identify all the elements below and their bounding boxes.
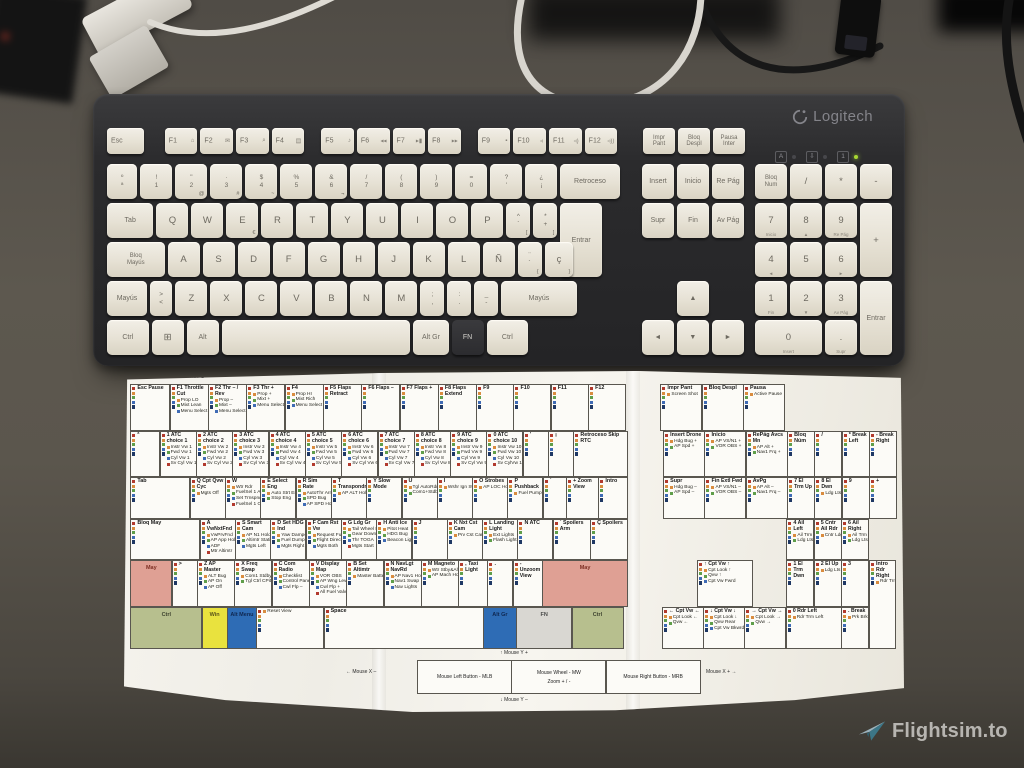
chart-cell: * Break Left bbox=[842, 431, 870, 477]
keyboard-key: Av Pág bbox=[712, 203, 744, 238]
modifier-strip bbox=[706, 434, 709, 456]
chart-key-label: Bloq May bbox=[137, 521, 198, 527]
spacer bbox=[628, 560, 662, 607]
key-label: F8 bbox=[432, 138, 440, 145]
chart-cell: 0 Rdr LeftRdr Trm Left bbox=[786, 607, 842, 649]
key-altgr-label: # bbox=[236, 191, 239, 197]
keyboard-key: ► bbox=[712, 320, 744, 355]
modifier-strip bbox=[439, 480, 442, 502]
keyboard-key: ? ' bbox=[490, 164, 522, 199]
modifier-strip bbox=[202, 522, 205, 544]
chart-cell: May bbox=[130, 560, 172, 607]
chart-cell: . bbox=[487, 560, 513, 607]
chart-binding: Fuel Pump bbox=[514, 491, 541, 497]
chart-cell: Bloq May bbox=[130, 519, 200, 560]
modifier-strip bbox=[664, 610, 667, 632]
chart-key-label: Space bbox=[331, 609, 482, 615]
key-label: B bbox=[328, 293, 334, 304]
chart-binding: Rdr Trm Right bbox=[876, 579, 894, 585]
mouse-buttons-box: Mouse Left Button - MLBMouse Wheel - MWZ… bbox=[418, 660, 701, 694]
key-label: F bbox=[286, 254, 292, 265]
modifier-strip bbox=[871, 563, 874, 585]
keyboard-key: Re Pág bbox=[712, 164, 744, 199]
key-label: . bbox=[840, 332, 843, 343]
key-label: F10 bbox=[517, 138, 529, 145]
key-sublabel: Inicio bbox=[755, 232, 787, 237]
modifier-strip bbox=[592, 522, 595, 544]
chart-cell: + Zoom View bbox=[566, 477, 599, 519]
modifier-strip bbox=[132, 434, 135, 456]
power-led bbox=[2, 34, 8, 40]
chart-cell: 0 ATC choice 10Instr Vw 10Fwd Vw 10Cyl V… bbox=[486, 431, 523, 477]
key-label: 6 bbox=[838, 254, 843, 265]
chart-binding: Sv CylVw 10 bbox=[493, 461, 521, 467]
modifier-strip bbox=[440, 387, 443, 409]
chart-cell: 4 Ail LeftAil Trm LftLdg Lts ← bbox=[786, 519, 814, 560]
modifier-strip bbox=[816, 480, 819, 502]
keyboard-key: L bbox=[448, 242, 480, 277]
chart-key-label: ¡ bbox=[555, 433, 572, 439]
chart-binding: Cpt Vw Bkwrd bbox=[710, 626, 743, 632]
chart-binding: Prk Brk bbox=[848, 615, 867, 621]
chart-cell: F7 Flaps + bbox=[400, 384, 439, 431]
chart-cell: 1 El Trm Dwn bbox=[786, 560, 814, 607]
chart-binding: Mgts Left bbox=[242, 544, 269, 550]
keyboard-key: 3Av Pág bbox=[825, 281, 857, 316]
modifier-strip bbox=[343, 434, 346, 456]
chart-key-label: Tab bbox=[137, 479, 188, 485]
keyboard-key: ) 9 bbox=[420, 164, 452, 199]
modifier-strip bbox=[515, 387, 518, 409]
key-altgr-label: } bbox=[569, 269, 571, 275]
chart-binding: Mgts Start bbox=[348, 544, 375, 550]
key-label: Retroceso bbox=[574, 178, 606, 185]
led-on bbox=[854, 155, 858, 159]
chart-cell: F3 Thr +Prop +Mixt +Menu Select 3 bbox=[246, 384, 285, 431]
chart-binding: Cntr Ldg Lts bbox=[821, 533, 840, 539]
keyboard-key: F8▸▸ bbox=[428, 128, 461, 154]
modifier-strip bbox=[871, 434, 874, 456]
chart-cell: Win bbox=[202, 607, 228, 649]
chart-key-label: Bloq Núm bbox=[794, 433, 813, 445]
modifier-strip bbox=[262, 480, 265, 502]
key-label: ^ ` bbox=[517, 213, 520, 228]
keyboard-key: 0Insert bbox=[755, 320, 822, 355]
led-off bbox=[792, 155, 796, 159]
chart-binding: Sv Cyl Vw 3 bbox=[239, 461, 267, 467]
keyboard-key: FN bbox=[452, 320, 484, 355]
chart-binding: Flash Light bbox=[489, 538, 516, 544]
modifier-strip bbox=[553, 387, 556, 409]
modifier-strip bbox=[843, 522, 846, 544]
keyboard-key: F10◃ bbox=[513, 128, 546, 154]
modifier-strip bbox=[788, 522, 791, 544]
keyboard-key: 2▼ bbox=[790, 281, 822, 316]
chart-binding: Beacon Light bbox=[383, 538, 410, 544]
keyboard-row: º ª! 1" 2@· 3#$ 4~% 5& 6¬/ 7( 8) 9= 0? '… bbox=[107, 164, 895, 199]
key-label: F4 bbox=[276, 138, 284, 145]
modifier-strip bbox=[308, 522, 311, 544]
key-label: U bbox=[379, 215, 386, 226]
modifier-strip bbox=[227, 480, 230, 502]
chart-key-label: 6 Ail Right bbox=[848, 521, 867, 533]
chart-binding: Ldg Lts → bbox=[848, 538, 867, 544]
chart-cell: 5 Cntr Ail RdrCntr Ldg Lts bbox=[814, 519, 842, 560]
key-function-icon: ◃ bbox=[540, 138, 543, 145]
key-label: A bbox=[180, 254, 186, 265]
modifier-strip bbox=[705, 610, 708, 632]
chart-cell: SuprHdg Bug –AP Spd – bbox=[663, 477, 705, 519]
modifier-strip bbox=[132, 387, 135, 409]
keyboard-key: Pausa Inter bbox=[713, 128, 745, 154]
key-label: Insert bbox=[649, 178, 667, 185]
keyboard-key: Ctrl bbox=[487, 320, 529, 355]
chart-key-label: R Sim Rate bbox=[303, 479, 330, 491]
chart-cell: Q Cpt Qvw CycMgts Off bbox=[190, 477, 226, 519]
chart-binding: Sv Cyl Vw 8 bbox=[421, 461, 449, 467]
key-label: F3 bbox=[240, 138, 248, 145]
chart-cell: ' bbox=[523, 431, 549, 477]
key-label: C bbox=[258, 293, 265, 304]
modifier-strip bbox=[706, 480, 709, 502]
key-label: F6 bbox=[361, 138, 369, 145]
key-label: S bbox=[215, 254, 221, 265]
key-function-icon: ◃)) bbox=[607, 138, 614, 145]
modifier-strip bbox=[271, 434, 274, 456]
keyboard-key: / 7 bbox=[350, 164, 382, 199]
keyboard-key: F5♪ bbox=[321, 128, 354, 154]
chart-key-label: > bbox=[179, 562, 196, 568]
key-label: Mayús bbox=[117, 295, 138, 302]
chart-cell: 3 bbox=[841, 560, 869, 607]
chart-key-label: J bbox=[419, 521, 446, 527]
modifier-strip bbox=[478, 387, 481, 409]
chart-key-label: 7 El Trm Up bbox=[794, 479, 813, 491]
key-sublabel: ► bbox=[825, 271, 857, 276]
modifier-strip bbox=[745, 387, 748, 409]
chart-key-label: 3 bbox=[848, 562, 867, 568]
key-label: ? ' bbox=[505, 174, 509, 189]
keyboard-key: Z bbox=[175, 281, 207, 316]
keyboard-key: & 6¬ bbox=[315, 164, 347, 199]
modifier-strip bbox=[132, 522, 135, 544]
modifier-strip bbox=[274, 563, 277, 585]
chart-key-label: ' bbox=[530, 433, 547, 439]
key-sublabel: Insert bbox=[755, 349, 822, 354]
keyboard-row: EscF1⌂F2✉F3⌕F4▤F5♪F6◂◂F7▸▮F8▸▸F9▪F10◃F11… bbox=[107, 128, 895, 154]
chart-key-label: 0 ATC choice 10 bbox=[493, 433, 521, 445]
modifier-strip bbox=[789, 434, 792, 456]
chart-key-label: L Landing Light bbox=[489, 521, 516, 533]
chart-cell: ¡ bbox=[548, 431, 574, 477]
chart-binding: Tgl Ctrl CPit bbox=[241, 579, 270, 585]
spacer bbox=[626, 384, 661, 431]
chart-cell: ↑ Cpt Vw ↑Cpt Look ↑Qvw ↑Cpt Vw Fwrd bbox=[697, 560, 753, 607]
keyboard-key: 5 bbox=[790, 242, 822, 277]
keyboard-key: F3⌕ bbox=[236, 128, 269, 154]
keyboard-key: F6◂◂ bbox=[357, 128, 390, 154]
chart-cell: → Cpt Vw →Cpt Look →Qvw → bbox=[744, 607, 786, 649]
keyboard-key: V bbox=[280, 281, 312, 316]
chart-cell: H Anti IcePitot HeatHDG BugBeacon Light bbox=[376, 519, 412, 560]
chart-key-label: Y Slow Mode bbox=[373, 479, 400, 491]
chart-cell: Retroceso Skip RTC bbox=[573, 431, 628, 477]
chart-cell: Bloq Núm bbox=[787, 431, 815, 477]
chart-binding: Mgts Off bbox=[197, 491, 224, 497]
modifier-strip bbox=[488, 434, 491, 456]
chart-binding: Menu Select 4 bbox=[292, 403, 322, 409]
chart-key-label: 2 ATC choice 2 bbox=[203, 433, 231, 445]
chart-binding: Menu Select 2 bbox=[215, 409, 245, 415]
chart-cell: K Nxt Cst CamPrv Cst Cam bbox=[447, 519, 483, 560]
chart-binding: AP Off bbox=[204, 585, 233, 591]
keyboard-key: Bloq Num bbox=[755, 164, 787, 199]
keyboard-key: * bbox=[825, 164, 857, 199]
chart-binding: Sv Cyl Vw 5 bbox=[312, 461, 340, 467]
key-label: 9 bbox=[838, 215, 843, 226]
chart-binding: AP SPD Hold bbox=[303, 502, 330, 508]
modifier-strip bbox=[343, 522, 346, 544]
chart-cell: Fin Extl FwdAP VS/N1 –VOR OBS – bbox=[704, 477, 746, 519]
chart-binding: Rdr Trm Left bbox=[793, 615, 840, 621]
modifier-strip bbox=[515, 563, 518, 585]
spacer bbox=[628, 519, 661, 560]
key-label: = 0 bbox=[469, 174, 473, 189]
keyboard-key: F1⌂ bbox=[165, 128, 198, 154]
key-label: ¨ ´ bbox=[529, 252, 531, 267]
key-label: > < bbox=[159, 291, 163, 306]
chart-binding: AP Spd – bbox=[670, 490, 703, 496]
chart-cell: B Set AltimtrMaster Battery bbox=[346, 560, 384, 607]
key-label: X bbox=[223, 293, 229, 304]
modifier-strip bbox=[404, 480, 407, 502]
modifier-strip bbox=[414, 522, 417, 544]
chart-binding: Qvw → bbox=[751, 620, 784, 626]
keyboard-key: Alt Gr bbox=[413, 320, 448, 355]
keyboard-key: Bloq Mayús bbox=[107, 242, 165, 277]
chart-key-label: Retroceso Skip RTC bbox=[580, 433, 626, 445]
key-label: Fin bbox=[688, 217, 698, 224]
keyboard-key: 4◄ bbox=[755, 242, 787, 277]
chart-binding: Nav1 Frq – bbox=[753, 490, 786, 496]
chart-key-label: T Transpondr bbox=[338, 479, 365, 491]
chart-binding: AP Mach Hold bbox=[428, 573, 457, 579]
chart-key-label: Ctrl bbox=[573, 612, 623, 618]
keyboard-key: N bbox=[350, 281, 382, 316]
chart-cell: InicioAP VS/N1 +VOR OBS + bbox=[704, 431, 746, 477]
keyboard-key: Q bbox=[156, 203, 188, 238]
chart-cell: 7 ATC choice 7Instr Vw 7Fwd Vw 7Cyl Vw 7… bbox=[378, 431, 415, 477]
mouse-x-plus-label: Mouse X + → bbox=[706, 669, 736, 675]
key-sublabel: Supr bbox=[825, 349, 857, 354]
key-function-icon: ▸▸ bbox=[452, 138, 458, 145]
chart-key-label: 5 ATC choice 5 bbox=[312, 433, 340, 445]
key-altgr-label: [ bbox=[526, 230, 528, 236]
keyboard-key: Fin bbox=[677, 203, 709, 238]
key-label: Mayús bbox=[529, 295, 550, 302]
key-label: Ctrl bbox=[502, 334, 513, 341]
modifier-strip bbox=[452, 434, 455, 456]
modifier-strip bbox=[525, 434, 528, 456]
keyboard-key: $ 4~ bbox=[245, 164, 277, 199]
chart-cell: L Landing LightExt LightsFlash Light bbox=[482, 519, 518, 560]
desk-surface: Logitech A⇩1 EscF1⌂F2✉F3⌕F4▤F5♪F6◂◂F7▸▮F… bbox=[0, 0, 1024, 768]
chart-binding: Ldg Lts ← bbox=[793, 538, 812, 544]
chart-binding: Prv Cst Cam bbox=[454, 533, 481, 539]
keyboard-key: ▲ bbox=[677, 281, 709, 316]
chart-key-label: ª bbox=[137, 433, 158, 439]
chart-cell: X Freq SwapCom1 StdbyTgl Ctrl CPit bbox=[234, 560, 272, 607]
laptop-edge bbox=[0, 0, 87, 104]
chart-key-label: Alt Gr bbox=[484, 612, 516, 618]
key-label: Y bbox=[344, 215, 350, 226]
mouse-box-label: Mouse Left Button - MLB bbox=[437, 674, 492, 680]
key-label: ç bbox=[557, 254, 562, 265]
chart-cell: F6 Flaps – bbox=[361, 384, 400, 431]
keyboard-key: : . bbox=[447, 281, 471, 316]
modifier-strip bbox=[871, 480, 874, 502]
chart-cell: ` bbox=[543, 477, 567, 519]
keyboard-key: ^ `[ bbox=[506, 203, 530, 238]
keyboard-key: F7▸▮ bbox=[393, 128, 426, 154]
modifier-strip bbox=[325, 387, 328, 409]
key-label: J bbox=[391, 254, 396, 265]
modifier-strip bbox=[590, 387, 593, 409]
chart-key-label: Z AP Master bbox=[204, 562, 233, 574]
keyboard-key: R bbox=[261, 203, 293, 238]
chart-key-label: RePág Avcs Mn bbox=[753, 433, 786, 445]
chart-key-label: 8 ATC choice 8 bbox=[421, 433, 449, 445]
key-label: Bloq Mayús bbox=[127, 253, 145, 266]
chart-key-label: + bbox=[876, 479, 895, 485]
key-label: Impr Pant bbox=[653, 135, 665, 148]
key-altgr-label: € bbox=[252, 230, 255, 236]
chart-binding: Active Pause bbox=[750, 392, 783, 398]
key-label: / 7 bbox=[365, 174, 369, 189]
chart-cell: F11 bbox=[551, 384, 589, 431]
key-sublabel: Av Pág bbox=[825, 310, 857, 315]
spacer bbox=[628, 477, 663, 519]
modifier-strip bbox=[248, 387, 251, 409]
paper-plane-icon bbox=[858, 719, 886, 743]
chart-binding: Wshr Ign Switch bbox=[444, 485, 471, 491]
keyboard-key: A bbox=[168, 242, 200, 277]
chart-cell: ª bbox=[130, 431, 160, 477]
key-label: Ctrl bbox=[122, 334, 133, 341]
chart-cell: 9 ATC choice 9Instr Vw 9Fwd Vw 9Cyl Vw 9… bbox=[450, 431, 487, 477]
chart-key-label: - Break Right bbox=[876, 433, 895, 445]
keyboard-key: W bbox=[191, 203, 223, 238]
modifier-strip bbox=[416, 434, 419, 456]
keyboard-key: O bbox=[436, 203, 468, 238]
key-label: F11 bbox=[553, 138, 565, 145]
chart-row: Bloq MayA VwNxtFndVwPrvFndAP App HoldADF… bbox=[131, 519, 897, 560]
chart-binding: Mtr Altimtr bbox=[207, 549, 234, 555]
key-sublabel: Re Pág bbox=[825, 232, 857, 237]
keyboard-key: ¨ ´{ bbox=[518, 242, 542, 277]
keyboard-key: _ - bbox=[474, 281, 498, 316]
chart-key-label: * Break Left bbox=[849, 433, 868, 445]
key-label: Bloq Despl bbox=[686, 135, 701, 148]
modifier-strip bbox=[380, 434, 383, 456]
modifier-strip bbox=[162, 434, 165, 456]
key-label: ( 8 bbox=[400, 174, 404, 189]
keyboard-key: F12◃)) bbox=[585, 128, 618, 154]
chart-key-label: K Nxt Cst Cam bbox=[454, 521, 481, 533]
chart-key-label: F5 Flaps Retract bbox=[330, 386, 360, 398]
chart-key-label: F6 Flaps – bbox=[368, 386, 398, 392]
chart-binding: Mgts Both bbox=[313, 544, 340, 550]
keyboard-key: ! 1 bbox=[140, 164, 172, 199]
keyboard-key: Ñ bbox=[483, 242, 515, 277]
key-label: 3 bbox=[838, 293, 843, 304]
key-label: Supr bbox=[651, 217, 666, 224]
key-label: ; , bbox=[431, 291, 433, 306]
key-label: O bbox=[449, 215, 456, 226]
keyboard-key: F9▪ bbox=[478, 128, 511, 154]
key-label: W bbox=[203, 215, 212, 226]
keyboard-key: 1Fin bbox=[755, 281, 787, 316]
key-label: Inicio bbox=[685, 178, 701, 185]
keyboard-key: P bbox=[471, 203, 503, 238]
keyboard-key: - bbox=[860, 164, 892, 199]
modifier-strip bbox=[662, 387, 665, 409]
keyboard-row: Bloq MayúsASDFGHJKLÑ¨ ´{ç}4◄56► bbox=[107, 242, 895, 277]
chart-key-label: F11 bbox=[558, 386, 587, 392]
keyboard-key: ◄ bbox=[642, 320, 674, 355]
key-label: 7 bbox=[768, 215, 773, 226]
modifier-strip bbox=[272, 522, 275, 544]
chart-key-label: 4 Ail Left bbox=[793, 521, 812, 533]
key-label: F12 bbox=[589, 138, 601, 145]
keyboard-key: M bbox=[385, 281, 417, 316]
key-label: T bbox=[309, 215, 315, 226]
chart-cell: / bbox=[814, 431, 842, 477]
key-label: Esc bbox=[111, 138, 123, 145]
chart-cell: May bbox=[542, 560, 628, 607]
mouse-y-minus-label: ↓ Mouse Y – bbox=[124, 697, 904, 703]
modifier-strip bbox=[363, 387, 366, 409]
key-label: Ñ bbox=[495, 254, 502, 265]
chart-binding: Com1+Stdby bbox=[409, 490, 436, 496]
chart-cell: PausaActive Pause bbox=[743, 384, 785, 431]
chart-cell: Intro Rdr RightRdr Trm Right bbox=[869, 560, 896, 649]
keyboard-key: > < bbox=[150, 281, 172, 316]
chart-key-label: ´ Spoilers Arm bbox=[560, 521, 589, 533]
key-label: D bbox=[250, 254, 257, 265]
chart-row: ª1 ATC choice 1Instr Vw 1Fwd Vw 1Cyl Vw … bbox=[131, 431, 897, 477]
keyboard-key: ¿ ¡ bbox=[525, 164, 557, 199]
chart-key-label: - Unzoom View bbox=[520, 562, 541, 579]
chart-cell: J bbox=[412, 519, 448, 560]
chart-cell: > bbox=[172, 560, 198, 607]
chart-cell: - Break Right bbox=[869, 431, 897, 477]
key-label: H bbox=[355, 254, 362, 265]
modifier-strip bbox=[600, 480, 603, 502]
modifier-strip bbox=[816, 434, 819, 456]
modifier-strip bbox=[816, 563, 819, 585]
keyboard-key: Impr Pant bbox=[643, 128, 675, 154]
chart-row: May>Z AP MasterALT BugAP OnAP OffX Freq … bbox=[131, 560, 897, 607]
chart-key-label: May bbox=[131, 565, 171, 571]
chart-binding: Cpt Vw Fwrd bbox=[704, 579, 751, 585]
chart-key-label: . bbox=[494, 562, 511, 568]
modifier-strip bbox=[307, 434, 310, 456]
chart-key-label: 1 ATC choice 1 bbox=[167, 433, 195, 445]
key-label: * bbox=[839, 176, 843, 187]
chart-cell: 5 ATC choice 5Instr Vw 5Fwd Vw 5Cyl Vw 5… bbox=[305, 431, 342, 477]
chart-binding: Nav1 Frq + bbox=[753, 450, 786, 456]
